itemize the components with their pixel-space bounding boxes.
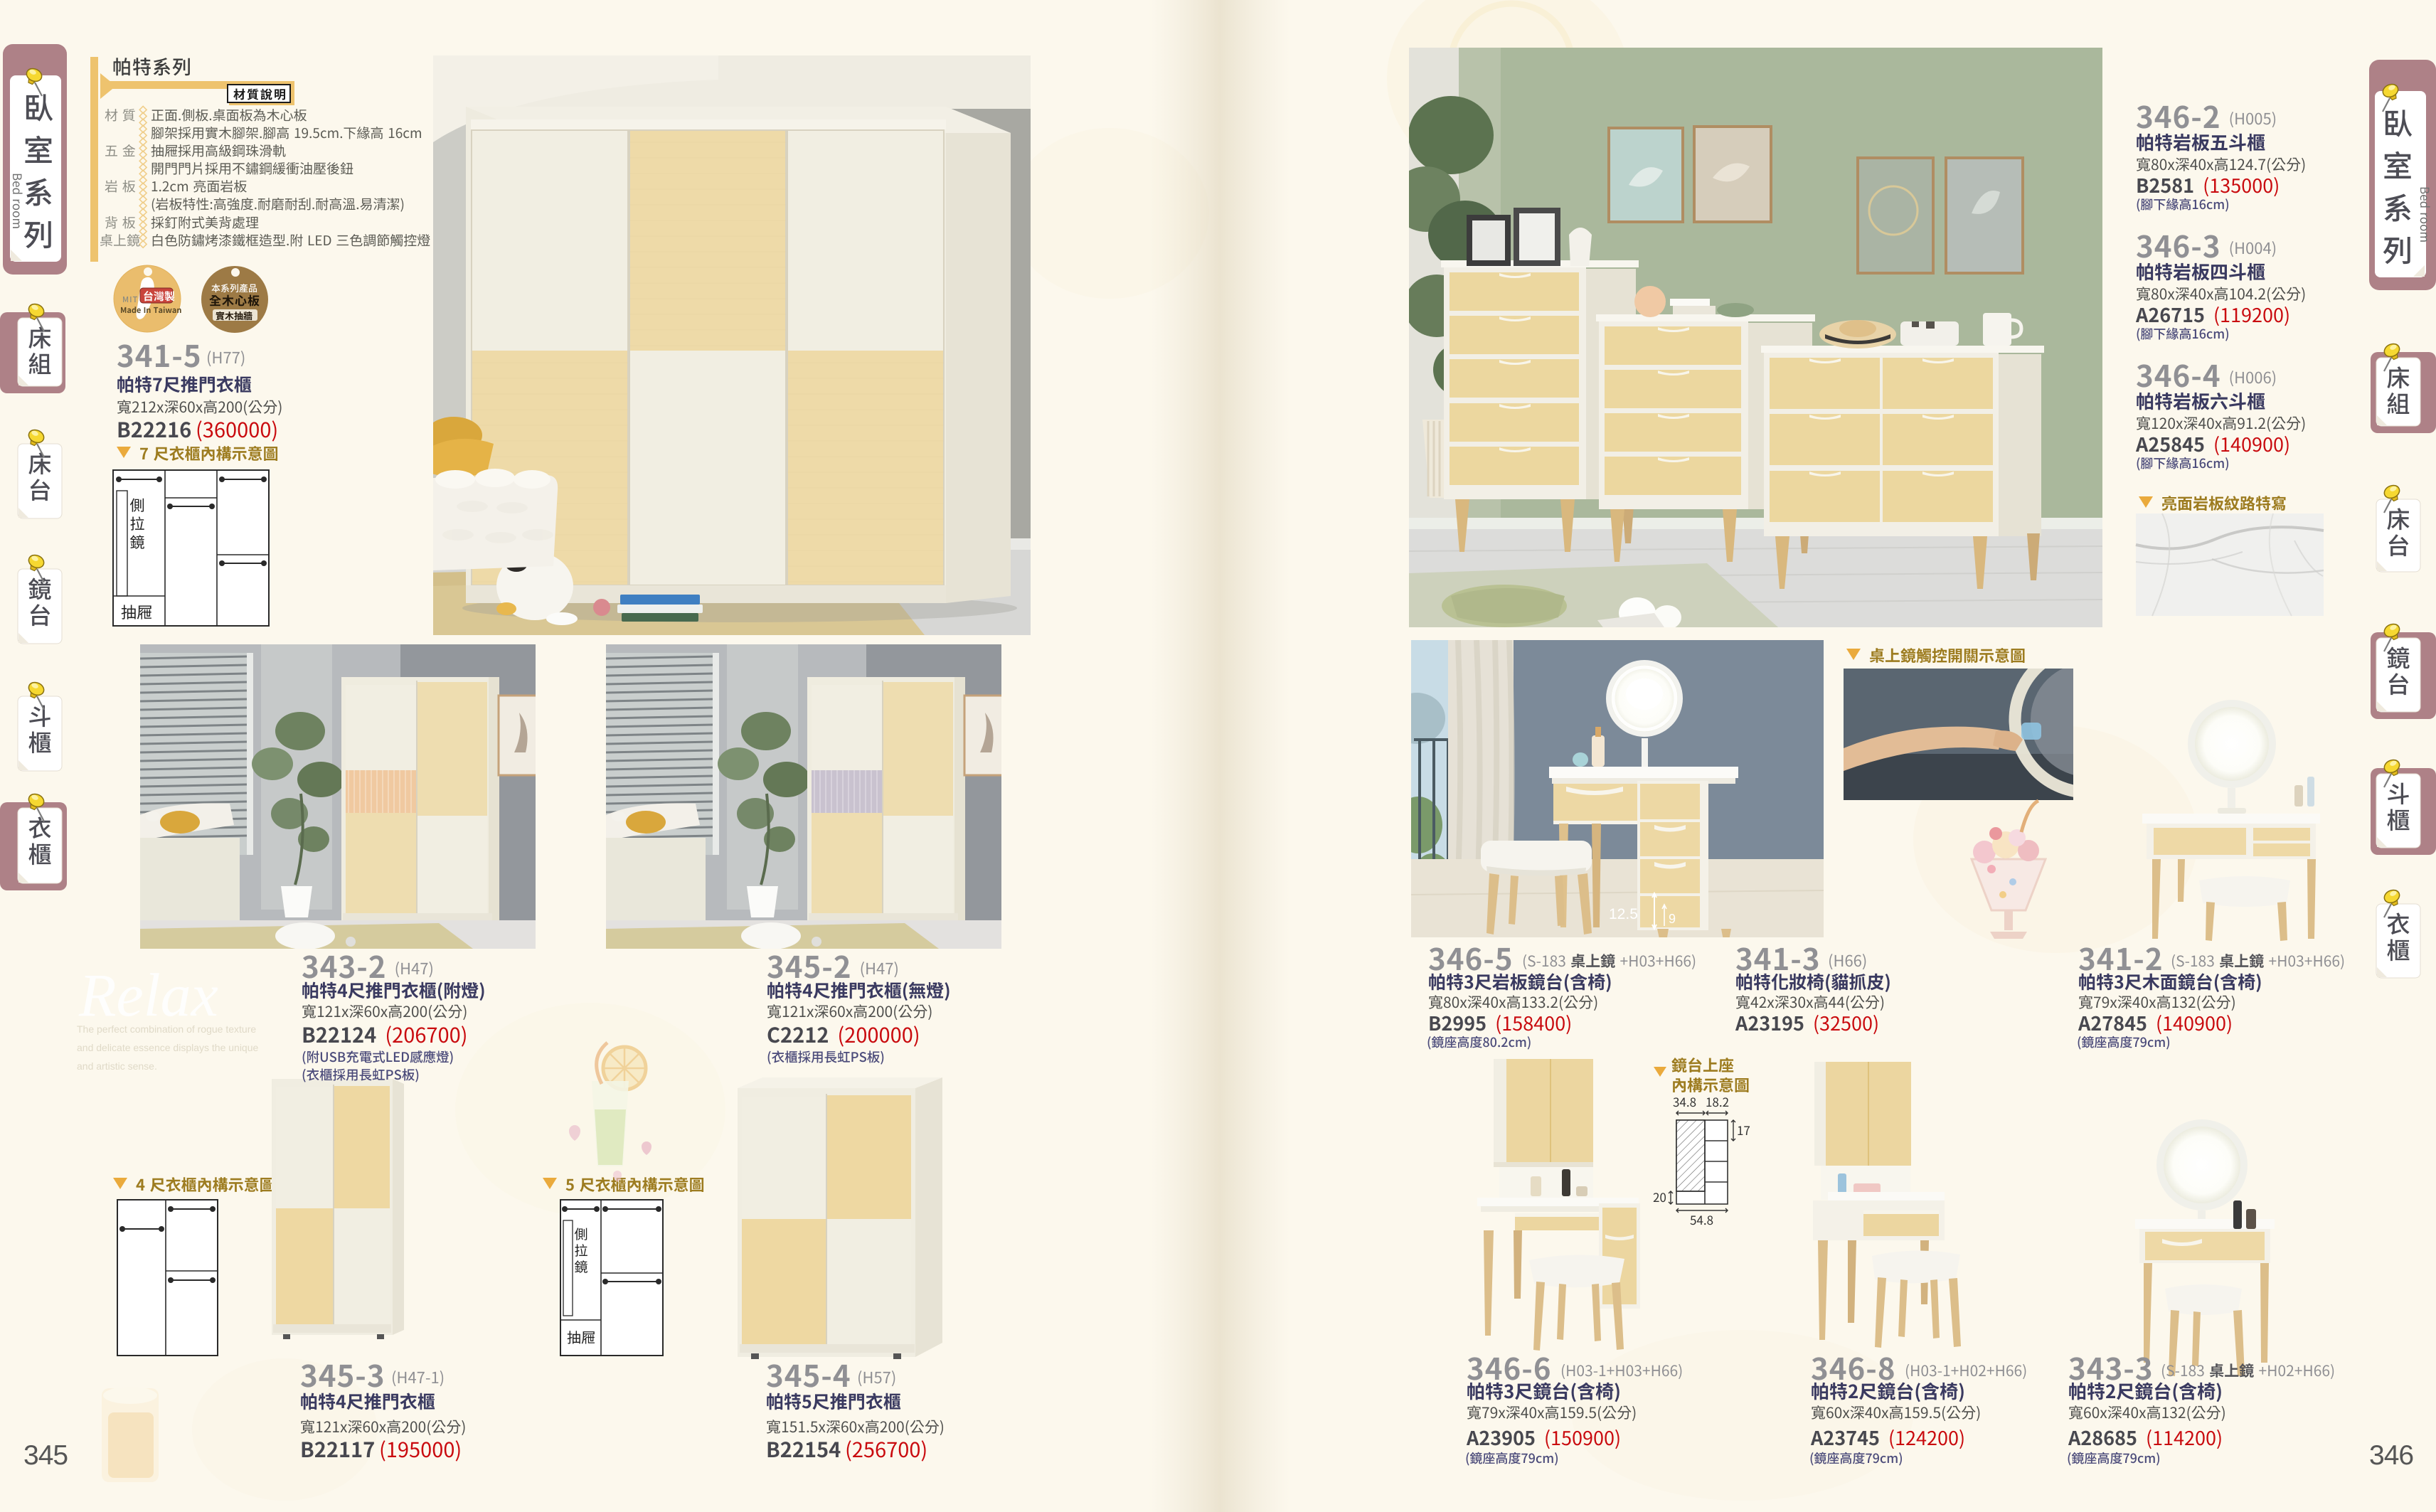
svg-text:12.5: 12.5 [1609, 906, 1638, 922]
svg-text:Relax: Relax [78, 961, 218, 1029]
svg-text:346: 346 [2369, 1440, 2413, 1471]
svg-text:and artistic sense.: and artistic sense. [77, 1060, 157, 1072]
svg-text:345: 345 [23, 1440, 68, 1471]
svg-text:9: 9 [1669, 912, 1676, 926]
svg-text:The perfect combination of rog: The perfect combination of rogue texture [77, 1023, 256, 1035]
svg-text:and delicate essence displays: and delicate essence displays the unique [77, 1042, 259, 1053]
